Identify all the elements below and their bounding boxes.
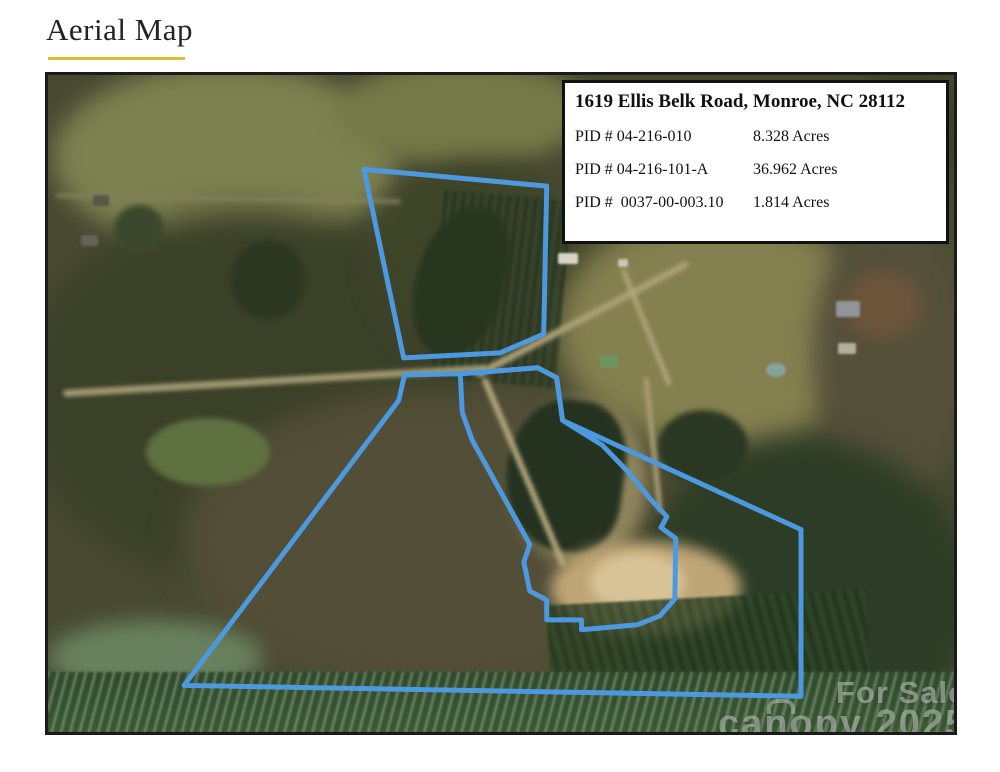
aerial-map-image: 1619 Ellis Belk Road, Monroe, NC 28112 P… — [45, 72, 957, 735]
parcel-row: PID # 0037-00-003.10 1.814 Acres — [575, 192, 936, 213]
parcel-row: PID # 04-216-010 8.328 Acres — [575, 126, 936, 147]
canopy-roof-icon — [767, 699, 795, 714]
parcel-acres: 1.814 Acres — [753, 192, 829, 213]
canopy-watermark: canopy 2025 — [718, 703, 957, 735]
parcel-pid: PID # 04-216-010 — [575, 126, 753, 147]
property-info-box: 1619 Ellis Belk Road, Monroe, NC 28112 P… — [562, 80, 949, 244]
parcel-pid: PID # 04-216-101-A — [575, 159, 753, 180]
property-address: 1619 Ellis Belk Road, Monroe, NC 28112 — [575, 91, 936, 113]
parcel-row: PID # 04-216-101-A 36.962 Acres — [575, 159, 936, 180]
parcel-outline-main — [184, 368, 801, 697]
parcel-pid: PID # 0037-00-003.10 — [575, 192, 753, 213]
parcel-outline-middle — [460, 368, 676, 630]
parcel-acres: 36.962 Acres — [753, 159, 837, 180]
parcel-outline-north — [364, 169, 547, 358]
page-title: Aerial Map — [46, 12, 193, 48]
parcel-acres: 8.328 Acres — [753, 126, 829, 147]
title-underline — [48, 57, 185, 60]
